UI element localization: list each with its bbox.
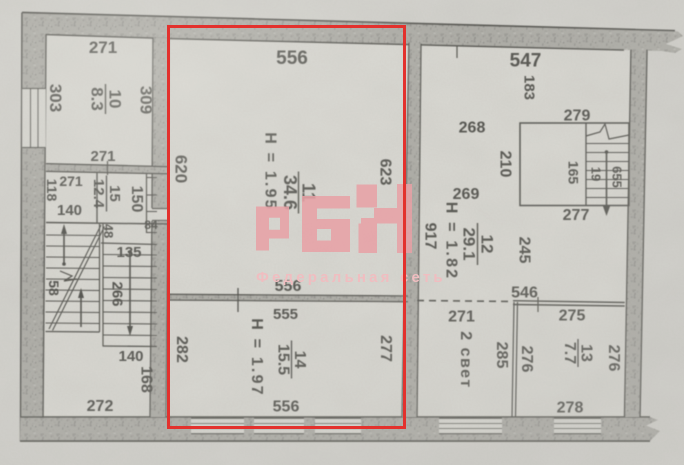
svg-text:Федеральная сеть: Федеральная сеть: [256, 269, 446, 286]
